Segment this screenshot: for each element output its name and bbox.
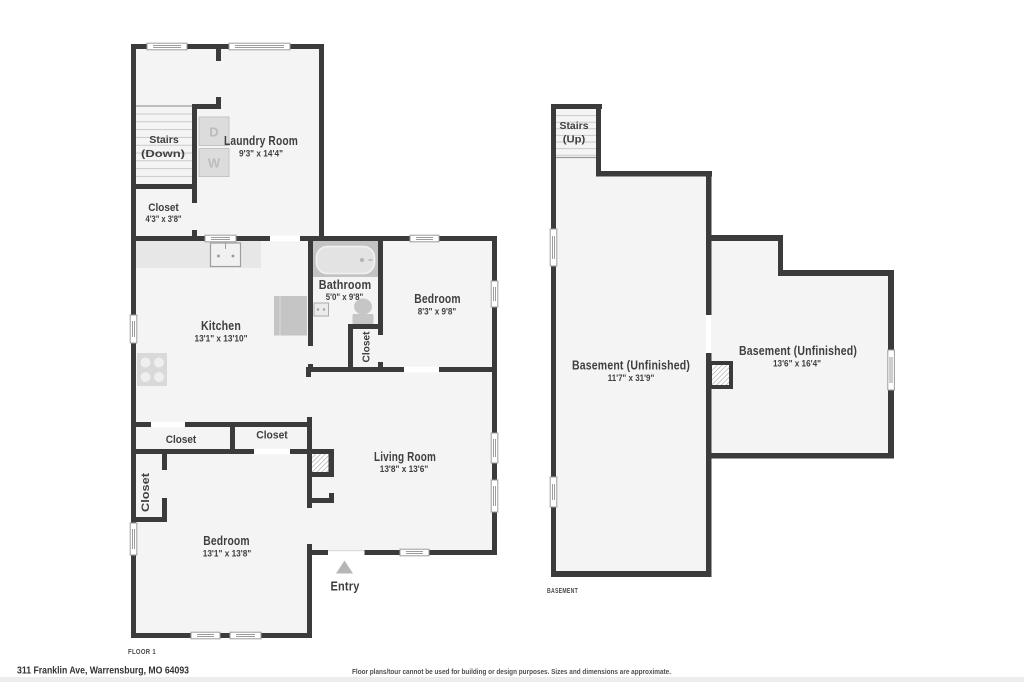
svg-text:D: D [209, 125, 218, 140]
svg-text:Closet: Closet [140, 473, 152, 512]
svg-text:Closet: Closet [148, 202, 179, 214]
svg-text:13'8" x 13'6": 13'8" x 13'6" [380, 464, 429, 475]
svg-text:Basement (Unfinished): Basement (Unfinished) [739, 344, 857, 358]
svg-text:5'0" x 9'8": 5'0" x 9'8" [326, 292, 364, 303]
svg-text:Closet: Closet [361, 331, 373, 362]
svg-text:13'6" x 16'4": 13'6" x 16'4" [773, 359, 821, 370]
svg-text:13'1" x 13'10": 13'1" x 13'10" [195, 334, 248, 345]
svg-text:Kitchen: Kitchen [201, 319, 241, 333]
svg-text:Floor plans/tour cannot be use: Floor plans/tour cannot be used for buil… [352, 669, 671, 676]
svg-text:13'1" x 13'8": 13'1" x 13'8" [203, 549, 252, 560]
svg-text:W: W [208, 156, 221, 171]
svg-text:Laundry Room: Laundry Room [224, 134, 298, 148]
svg-text:4'3" x 3'8": 4'3" x 3'8" [146, 214, 182, 224]
svg-text:Bathroom: Bathroom [319, 278, 372, 292]
svg-text:8'3" x 9'8": 8'3" x 9'8" [418, 307, 457, 318]
svg-text:(Up): (Up) [563, 134, 586, 146]
svg-text:Entry: Entry [331, 580, 360, 594]
svg-text:Bedroom: Bedroom [414, 292, 461, 306]
svg-text:Closet: Closet [166, 434, 197, 446]
svg-text:FLOOR 1: FLOOR 1 [128, 647, 156, 656]
svg-text:311 Franklin Ave, Warrensburg,: 311 Franklin Ave, Warrensburg, MO 64093 [17, 665, 189, 677]
svg-text:Living Room: Living Room [374, 450, 436, 464]
svg-text:Bedroom: Bedroom [203, 534, 250, 548]
svg-text:11'7" x 31'9": 11'7" x 31'9" [608, 373, 655, 384]
svg-text:9'3" x 14'4": 9'3" x 14'4" [239, 149, 283, 160]
svg-text:Stairs: Stairs [560, 120, 589, 132]
svg-text:(Down): (Down) [141, 148, 185, 160]
svg-text:BASEMENT: BASEMENT [547, 586, 578, 595]
svg-text:Closet: Closet [256, 430, 288, 442]
svg-text:Basement (Unfinished): Basement (Unfinished) [572, 359, 690, 373]
svg-text:Stairs: Stairs [149, 134, 179, 146]
